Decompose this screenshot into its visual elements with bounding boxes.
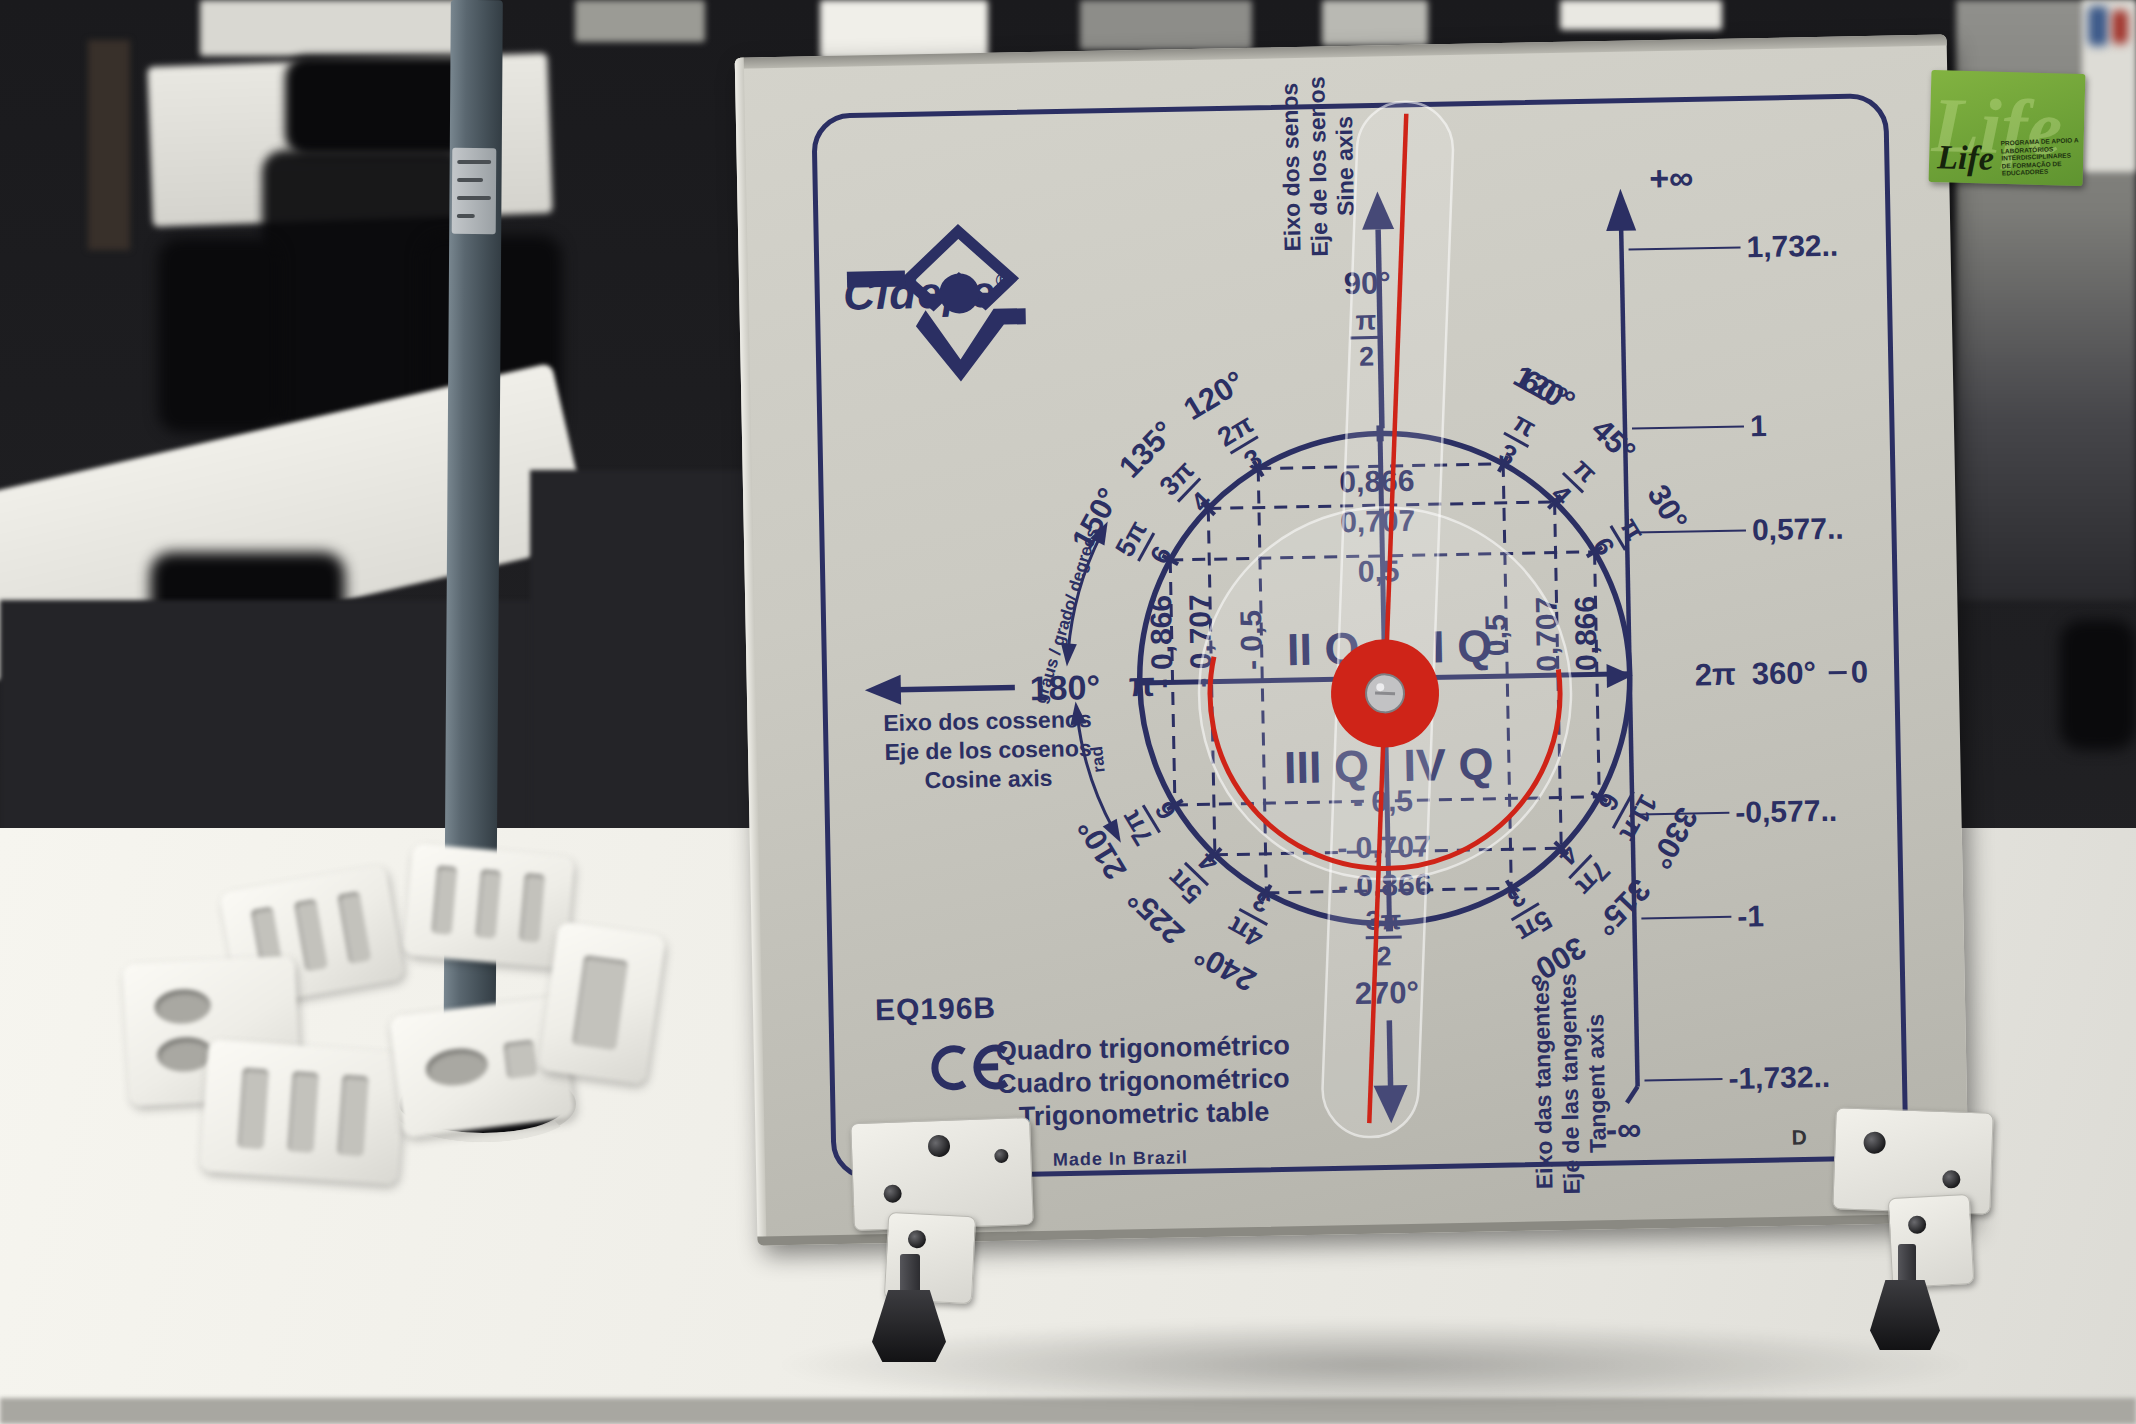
svg-text:3: 3 (1502, 880, 1530, 913)
foot-stem-right (1898, 1244, 1916, 1284)
svg-text:Eje de los cosenos: Eje de los cosenos (884, 735, 1092, 765)
angle-label-225: 225° 5π 4 (1119, 838, 1233, 952)
cabinet-top-4 (1322, 0, 1428, 46)
board-artwork: +∞ -∞ 1,732.. 1 0,577.. -0,577.. -1 -1,7… (735, 34, 1970, 1245)
registered-mark: ® (996, 270, 1010, 291)
life-caption: Programa de apoio a laboratórios interdi… (2000, 136, 2080, 177)
cidepe-logo: Cidepe® (843, 267, 1011, 320)
door-frame (88, 40, 130, 250)
board-title: Quadro trigonométrico Cuadro trigonométr… (996, 1029, 1292, 1134)
tangent-ticks (1629, 247, 1757, 1080)
tangent-value: 1,732.. (1746, 229, 1838, 264)
classroom-photo: +∞ -∞ 1,732.. 1 0,577.. -0,577.. -1 -1,7… (0, 0, 2136, 1424)
cosine-axis-label: Eixo dos cossenos Eje de los cosenos Cos… (883, 706, 1093, 794)
sine-axis-label: Eixo dos senos Eje de los senos Sine axi… (1276, 76, 1359, 258)
board-shadow (770, 1320, 1980, 1410)
svg-text:Eixo das tangentes: Eixo das tangentes (1528, 979, 1558, 1189)
svg-text:3: 3 (1239, 443, 1267, 476)
board-title-en: Trigonometric table (997, 1095, 1292, 1134)
svg-text:Eixo dos senos: Eixo dos senos (1276, 82, 1305, 251)
angle-label-135: 135° 3π 4 (1111, 413, 1225, 527)
brand-name: Cidepe (843, 267, 997, 319)
angle-label-30b: 30° π 6 (1582, 478, 1695, 567)
rad-arc-label: rad (1087, 745, 1109, 773)
tangent-plus-infinity: +∞ (1649, 158, 1694, 197)
pole-sticker (452, 148, 497, 234)
svg-text:Eje de las tangentes: Eje de las tangentes (1554, 973, 1584, 1195)
svg-text:2π: 2π (1694, 657, 1736, 693)
corner-letter-d: D (1791, 1125, 1807, 1149)
svg-text:3: 3 (1248, 885, 1276, 919)
life-brand: Life (1937, 138, 1995, 177)
svg-text:Eixo dos cossenos: Eixo dos cossenos (883, 706, 1092, 736)
life-sticker: Life Life Programa de apoio a laboratóri… (1929, 70, 2086, 186)
model-number: EQ196B (875, 991, 997, 1027)
tangent-value: 1 (1750, 409, 1767, 442)
svg-text:Tangent axis: Tangent axis (1582, 1014, 1611, 1153)
cabinet-top-2 (820, 0, 988, 60)
colored-items (2088, 6, 2108, 46)
tangent-axis-line (1605, 188, 1653, 1102)
tangent-minus-infinity: -∞ (1605, 1110, 1641, 1149)
svg-text:3: 3 (1494, 438, 1522, 472)
svg-text:π: π (1128, 665, 1155, 703)
cosine-axis-arrow (865, 672, 1016, 705)
svg-text:Cosine axis: Cosine axis (924, 765, 1052, 793)
chair-2 (158, 238, 280, 433)
angle-label-210: 210° 7π 6 (1070, 787, 1190, 886)
svg-text:6: 6 (1592, 788, 1626, 816)
cosine-value: 0,866 (1568, 596, 1602, 672)
made-in-label: Made In Brazil (1053, 1147, 1188, 1171)
svg-text:6: 6 (1587, 532, 1620, 560)
tangent-value: -1 (1737, 899, 1764, 933)
cabinet-top-left (200, 0, 465, 56)
cabinet-top-3 (1080, 0, 1252, 50)
tangent-value: 0,577.. (1752, 512, 1844, 547)
chair-far-right (2060, 620, 2136, 750)
cabinet-top-1 (575, 0, 705, 42)
svg-text:6: 6 (1149, 796, 1182, 824)
svg-text:0: 0 (1850, 654, 1868, 689)
angle-label-240: 240° 4π 3 (1187, 880, 1286, 1000)
switch-plate-6 (538, 921, 666, 1085)
angle-label-120: 120° 2π 3 (1177, 363, 1276, 483)
trigonometric-board: +∞ -∞ 1,732.. 1 0,577.. -0,577.. -1 -1,7… (735, 34, 1970, 1245)
tangent-value: -1,732.. (1728, 1060, 1830, 1095)
svg-text:180°: 180° (1029, 668, 1100, 707)
cabinet-top-5 (1560, 0, 1722, 30)
angle-label-360: 2π 360° 0 (1694, 654, 1868, 692)
colored-items-2 (2112, 10, 2128, 44)
switch-plate-2 (403, 843, 574, 969)
angle-label-315: 315° 7π 4 (1544, 830, 1658, 944)
svg-text:360°: 360° (1751, 655, 1816, 691)
svg-text:Eje de los senos: Eje de los senos (1303, 76, 1332, 257)
angle-label-180: 180° π (1029, 665, 1155, 707)
switch-plate-4 (200, 1039, 407, 1184)
tangent-value: -0,577.. (1735, 794, 1837, 829)
svg-text:6: 6 (1144, 541, 1178, 569)
